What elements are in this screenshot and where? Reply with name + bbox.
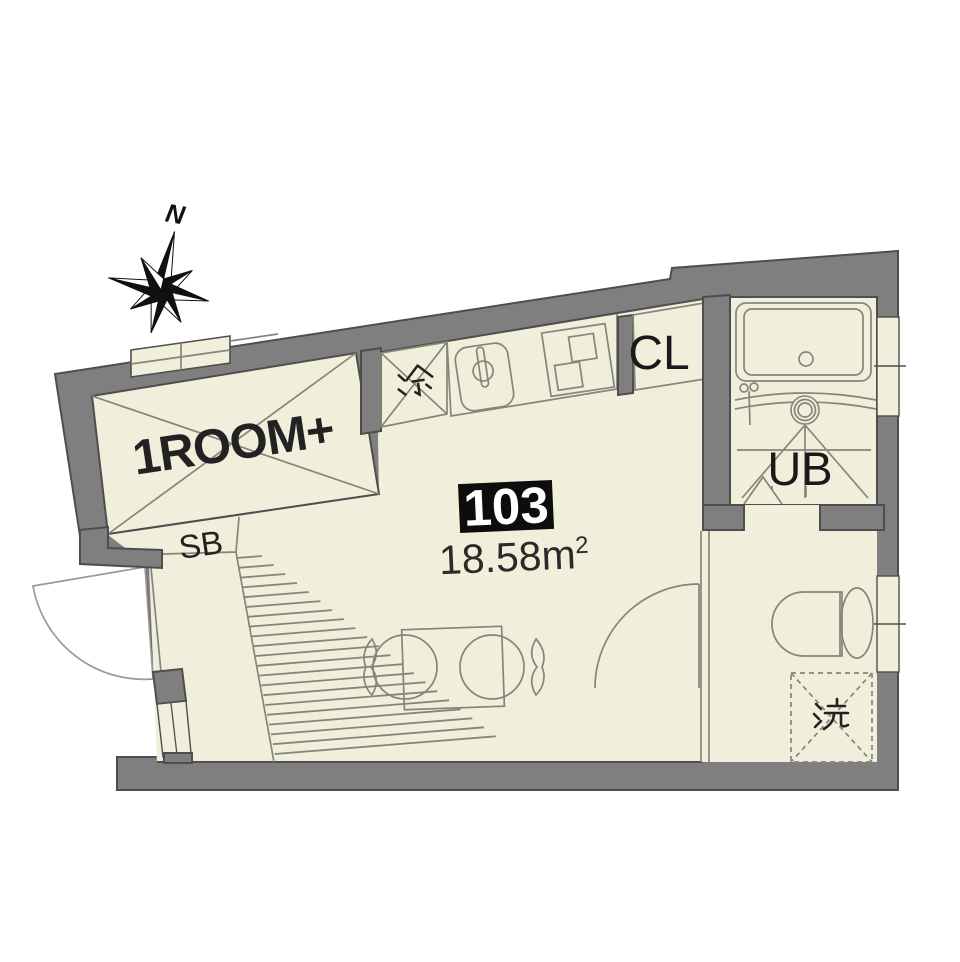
svg-text:103: 103: [462, 476, 549, 537]
svg-text:SB: SB: [176, 523, 225, 566]
svg-text:UB: UB: [767, 442, 832, 495]
svg-text:18.58m2: 18.58m2: [438, 531, 590, 584]
svg-text:CL: CL: [628, 327, 689, 380]
